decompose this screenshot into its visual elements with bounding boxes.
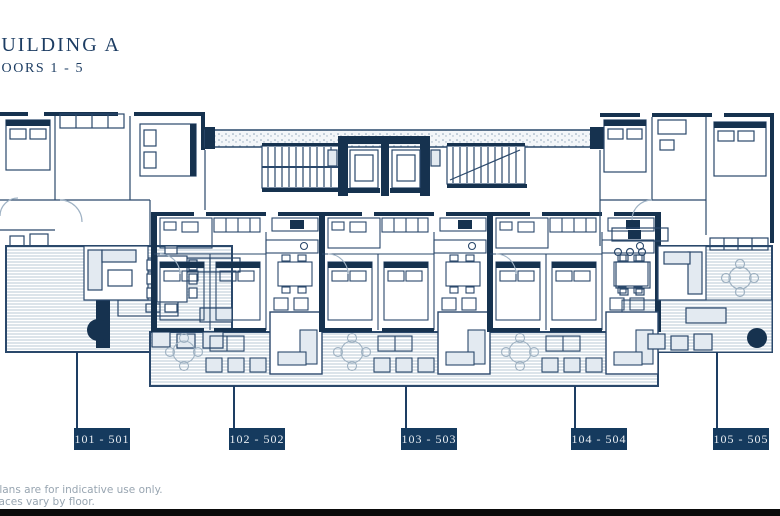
leader-line-102 <box>233 386 235 428</box>
leader-line-101 <box>76 352 78 428</box>
leader-line-104 <box>574 386 576 428</box>
unit-label-102-502[interactable]: 102 - 502 <box>229 428 285 450</box>
stairwell-right <box>447 143 527 188</box>
unit-label-105-505[interactable]: 105 - 505 <box>713 428 769 450</box>
unit-label-103-503[interactable]: 103 - 503 <box>401 428 457 450</box>
bottom-bar <box>0 509 780 516</box>
leader-line-103 <box>405 386 407 428</box>
disclaimer-line-2: Terraces vary by floor. <box>0 496 163 508</box>
disclaimer-line-1: Plans are for indicative use only. <box>0 484 163 496</box>
disclaimer: Plans are for indicative use only. Terra… <box>0 484 163 508</box>
elevator-core <box>328 136 440 196</box>
unit-label-104-504[interactable]: 104 - 504 <box>571 428 627 450</box>
floorplan-page: { "title": { "building": "BUILDING A", "… <box>0 0 780 516</box>
leader-line-105 <box>716 352 718 428</box>
unit-label-101-501[interactable]: 101 - 501 <box>74 428 130 450</box>
